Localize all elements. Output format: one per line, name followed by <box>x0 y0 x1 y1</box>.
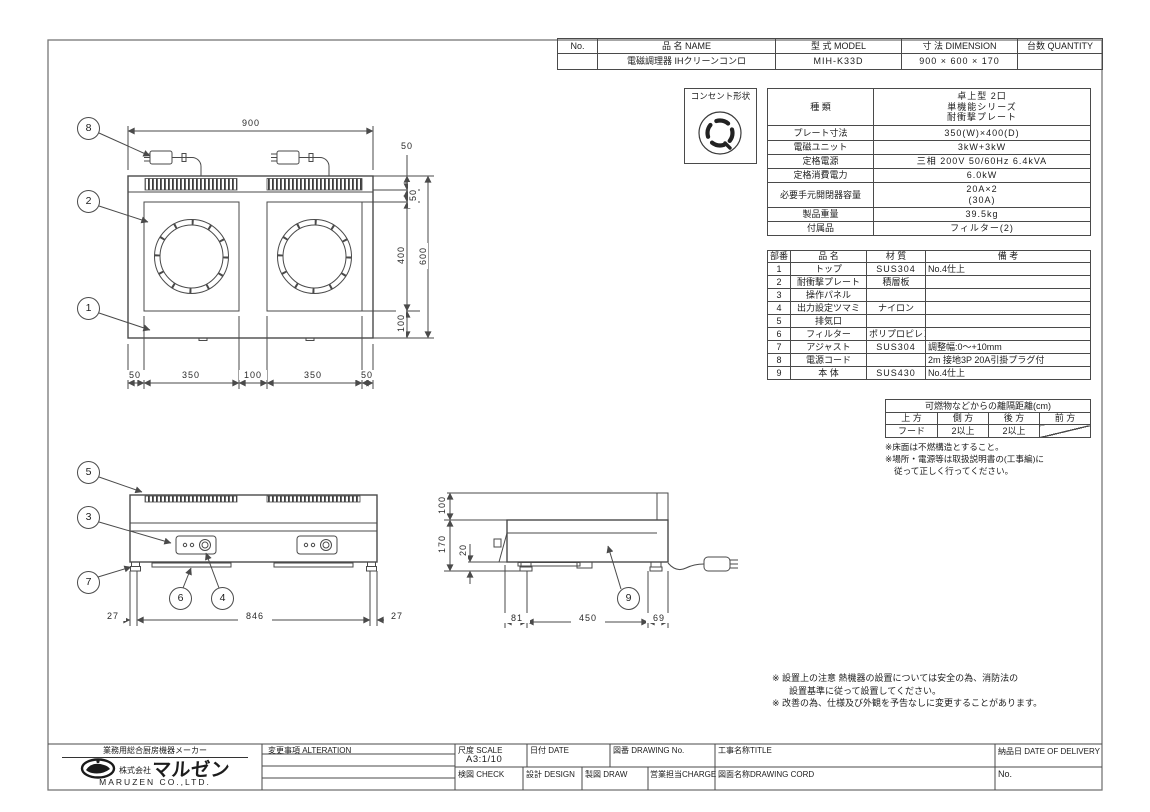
dim-side-bottom-2: 69 <box>646 613 672 623</box>
clearance-value: フード <box>886 425 938 438</box>
date-label: 日付 DATE <box>530 745 569 756</box>
spec-value: 卓上型 2口 単機能シリーズ 耐衝撃プレート <box>874 89 1091 126</box>
spec-value: 39.5kg <box>874 208 1091 222</box>
part-material: 積層板 <box>867 276 926 289</box>
part-material: SUS430 <box>867 367 926 380</box>
dim-side-100: 100 <box>437 492 447 518</box>
part-name: 耐衝撃プレート <box>791 276 867 289</box>
balloon-4: 4 <box>211 587 234 610</box>
part-material: ポリプロピレン <box>867 328 926 341</box>
dim-plan-width: 900 <box>230 118 272 128</box>
part-material <box>867 315 926 328</box>
locking-outlet-icon <box>685 103 756 163</box>
part-material: SUS304 <box>867 263 926 276</box>
part-remark <box>926 315 1091 328</box>
part-no: 2 <box>768 276 791 289</box>
header-col-model: 型 式 MODEL <box>776 39 902 54</box>
part-name: 電源コード <box>791 354 867 367</box>
parts-table: 部番 品 名 材 質 備 考 1 トップ SUS304 No.4仕上 2 耐衝撃… <box>767 250 1091 380</box>
part-no: 1 <box>768 263 791 276</box>
dim-plan-bottom-0: 50 <box>121 370 149 380</box>
drawing-no-label: 図番 DRAWING No. <box>613 745 684 756</box>
dim-side-bottom-0: 81 <box>504 613 530 623</box>
clearance-title: 可燃物などからの離隔距離(cm) <box>886 400 1091 413</box>
parts-col-no: 部番 <box>768 251 791 263</box>
alteration-label: 変更事項 ALTERATION <box>268 745 351 756</box>
part-name: トップ <box>791 263 867 276</box>
dim-front-right: 27 <box>384 611 410 621</box>
header-col-no: No. <box>558 39 598 54</box>
parts-row: 2 耐衝撃プレート 積層板 <box>768 276 1091 289</box>
dim-plan-bottom-2: 100 <box>239 370 267 380</box>
part-no: 9 <box>768 367 791 380</box>
part-no: 7 <box>768 341 791 354</box>
remark-line: ※ 改善の為、仕様及び外観を予告なしに変更することがあります。 <box>772 697 1042 710</box>
part-remark <box>926 276 1091 289</box>
balloon-3: 3 <box>77 506 100 529</box>
header-col-name: 品 名 NAME <box>598 39 776 54</box>
part-no: 8 <box>768 354 791 367</box>
part-name: 出力設定ツマミ <box>791 302 867 315</box>
clearance-value: 2以上 <box>989 425 1040 438</box>
spec-table: 種 類 卓上型 2口 単機能シリーズ 耐衝撃プレート プレート寸法 350(W)… <box>767 88 1091 236</box>
dim-plan-right-100: 100 <box>396 310 406 336</box>
design-label: 設計 DESIGN <box>526 769 575 780</box>
dim-front-center: 846 <box>238 611 272 621</box>
product-name: 電磁調理器 IHクリーンコンロ <box>598 54 776 70</box>
balloon-2: 2 <box>77 190 100 213</box>
spec-value: 三相 200V 50/60Hz 6.4kVA <box>874 155 1091 169</box>
balloon-1: 1 <box>77 297 100 320</box>
balloon-8: 8 <box>77 117 100 140</box>
clearance-col-front: 前 方 <box>1040 413 1091 425</box>
dim-plan-right-400: 400 <box>396 242 406 268</box>
spec-value: フィルター(2) <box>874 222 1091 236</box>
part-remark: 2m 接地3P 20A引掛プラグ付 <box>926 354 1091 367</box>
draw-label: 製図 DRAW <box>585 769 627 780</box>
part-material <box>867 354 926 367</box>
part-remark <box>926 302 1091 315</box>
parts-row: 4 出力設定ツマミ ナイロン <box>768 302 1091 315</box>
check-label: 検図 CHECK <box>458 769 504 780</box>
part-material: ナイロン <box>867 302 926 315</box>
remarks: ※ 設置上の注意 熱機器の設置については安全の為、消防法の 設置基準に従って設置… <box>772 672 1042 710</box>
part-no: 5 <box>768 315 791 328</box>
spec-value: 6.0kW <box>874 169 1091 183</box>
product-dimension: 900 × 600 × 170 <box>902 54 1018 70</box>
parts-col-material: 材 質 <box>867 251 926 263</box>
parts-row: 3 操作パネル <box>768 289 1091 302</box>
parts-row: 5 排気口 <box>768 315 1091 328</box>
spec-label: 電磁ユニット <box>768 141 874 155</box>
part-name: 操作パネル <box>791 289 867 302</box>
dim-side-170: 170 <box>437 531 447 557</box>
parts-row: 1 トップ SUS304 No.4仕上 <box>768 263 1091 276</box>
clearance-note-line: 従って正しく行ってください。 <box>885 465 1044 477</box>
part-remark <box>926 289 1091 302</box>
dim-front-left: 27 <box>100 611 126 621</box>
maruzen-logo-icon <box>80 758 116 779</box>
spec-value: 350(W)×400(D) <box>874 126 1091 141</box>
part-name: 排気口 <box>791 315 867 328</box>
clearance-note-line: ※場所・電源等は取扱説明書の(工事編)に <box>885 453 1044 465</box>
header-col-dimension: 寸 法 DIMENSION <box>902 39 1018 54</box>
dim-plan-height: 600 <box>418 243 428 269</box>
delivery-no-label: No. <box>998 769 1012 779</box>
drawing-sheet: No. 品 名 NAME 型 式 MODEL 寸 法 DIMENSION 台数 … <box>0 0 1150 812</box>
part-material: SUS304 <box>867 341 926 354</box>
company-prefix: 株式会社 <box>119 765 151 776</box>
parts-col-name: 品 名 <box>791 251 867 263</box>
spec-label: プレート寸法 <box>768 126 874 141</box>
part-no: 6 <box>768 328 791 341</box>
part-no: 3 <box>768 289 791 302</box>
spec-label: 製品重量 <box>768 208 874 222</box>
parts-row: 8 電源コード 2m 接地3P 20A引掛プラグ付 <box>768 354 1091 367</box>
dim-side-20: 20 <box>458 537 468 563</box>
balloon-5: 5 <box>77 461 100 484</box>
spec-label: 定格電源 <box>768 155 874 169</box>
clearance-value-struck <box>1040 425 1091 438</box>
outlet-shape-box <box>684 103 757 164</box>
dim-plan-right-50a: 50 <box>394 141 420 151</box>
parts-row: 7 アジャスト SUS304 調整幅:0〜+10mm <box>768 341 1091 354</box>
model-number: MIH-K33D <box>776 54 902 70</box>
part-remark: No.4仕上 <box>926 367 1091 380</box>
spec-label: 定格消費電力 <box>768 169 874 183</box>
dim-plan-bottom-3: 350 <box>298 370 328 380</box>
spec-value: 3kW+3kW <box>874 141 1091 155</box>
clearance-table: 可燃物などからの離隔距離(cm) 上 方 側 方 後 方 前 方 フード 2以上… <box>885 399 1091 438</box>
clearance-notes: ※床面は不燃構造とすること。 ※場所・電源等は取扱説明書の(工事編)に 従って正… <box>885 441 1044 478</box>
clearance-note-line: ※床面は不燃構造とすること。 <box>885 441 1044 453</box>
clearance-col-rear: 後 方 <box>989 413 1040 425</box>
balloon-7: 7 <box>77 571 100 594</box>
title-label: 工事名称TITLE <box>718 745 772 756</box>
part-remark: No.4仕上 <box>926 263 1091 276</box>
part-no: 4 <box>768 302 791 315</box>
dim-plan-bottom-1: 350 <box>176 370 206 380</box>
part-remark <box>926 328 1091 341</box>
part-name: 本 体 <box>791 367 867 380</box>
spec-label: 必要手元開閉器容量 <box>768 183 874 208</box>
dim-plan-bottom-4: 50 <box>353 370 381 380</box>
scale-value: A3:1/10 <box>466 754 502 765</box>
clearance-col-side: 側 方 <box>938 413 989 425</box>
outlet-shape-label: コンセント形状 <box>684 88 757 104</box>
header-col-quantity: 台数 QUANTITY <box>1018 39 1103 54</box>
parts-row: 6 フィルター ポリプロピレン <box>768 328 1091 341</box>
company-name-en: MARUZEN CO.,LTD. <box>60 777 250 787</box>
drawing-name-label: 図面名称DRAWING CORD <box>718 769 814 780</box>
dim-side-bottom-1: 450 <box>571 613 605 623</box>
charge-label: 営業担当CHARGE <box>650 769 716 780</box>
parts-col-remark: 備 考 <box>926 251 1091 263</box>
part-material <box>867 289 926 302</box>
clearance-value: 2以上 <box>938 425 989 438</box>
dim-plan-right-50b: 50 <box>408 182 418 208</box>
remark-line: 設置基準に従って設置してください。 <box>772 685 1042 698</box>
balloon-6: 6 <box>169 587 192 610</box>
spec-label: 付属品 <box>768 222 874 236</box>
header-no-value <box>558 54 598 70</box>
clearance-col-top: 上 方 <box>886 413 938 425</box>
spec-value: 20A×2 (30A) <box>874 183 1091 208</box>
remark-line: ※ 設置上の注意 熱機器の設置については安全の為、消防法の <box>772 672 1042 685</box>
part-name: アジャスト <box>791 341 867 354</box>
parts-row: 9 本 体 SUS430 No.4仕上 <box>768 367 1091 380</box>
balloon-9: 9 <box>617 587 640 610</box>
part-name: フィルター <box>791 328 867 341</box>
header-table: No. 品 名 NAME 型 式 MODEL 寸 法 DIMENSION 台数 … <box>557 38 1103 70</box>
spec-label: 種 類 <box>768 89 874 126</box>
part-remark: 調整幅:0〜+10mm <box>926 341 1091 354</box>
delivery-label: 納品日 DATE OF DELIVERY <box>998 746 1100 757</box>
header-quantity-value <box>1018 54 1103 70</box>
